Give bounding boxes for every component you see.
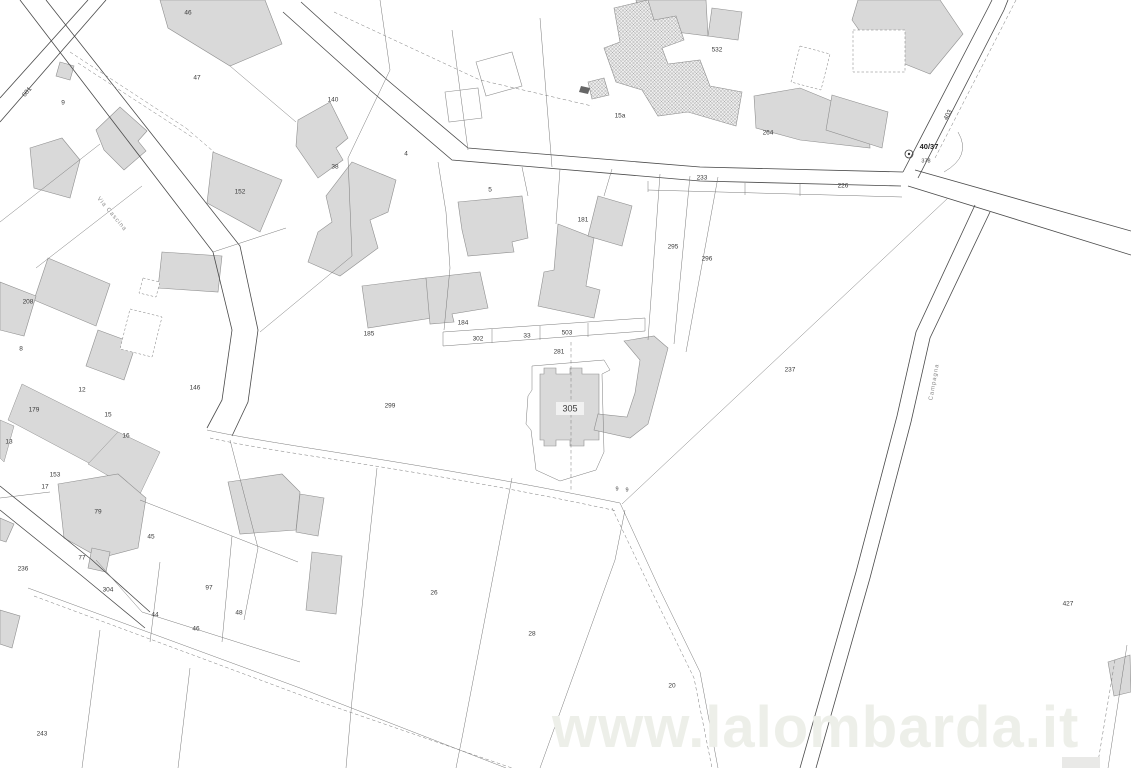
parcel-label: 8 <box>19 346 23 353</box>
parcel-label: 26 <box>430 590 438 597</box>
building-shape <box>158 252 222 292</box>
selected-parcel-label: 305 <box>562 403 577 413</box>
parcel-label: 77 <box>78 555 86 562</box>
parcel-label: 9 <box>615 486 618 492</box>
parcel-label: 17 <box>41 484 49 491</box>
parcel-label: 5 <box>488 187 492 194</box>
parcel-label: 44 <box>151 612 159 619</box>
parcel-label: 152 <box>235 189 246 196</box>
building-shape <box>228 474 300 534</box>
parcel-label: 15 <box>104 412 112 419</box>
parcel-label: 146 <box>190 385 201 392</box>
parcel-label: 79 <box>94 509 102 516</box>
parcel-label: 532 <box>712 47 723 54</box>
parcel-label: 295 <box>668 244 679 251</box>
parcel-label: 47 <box>193 75 201 82</box>
junction-label: 40/37 <box>920 142 939 151</box>
parcel-label: 226 <box>838 183 849 190</box>
parcel-label: 16 <box>122 433 130 440</box>
parcel-label: 179 <box>29 407 40 414</box>
parcel-label: 302 <box>473 336 484 343</box>
parcel-label: 48 <box>235 610 243 617</box>
parcel-label: 503 <box>562 330 573 337</box>
parcel-label: 208 <box>23 299 34 306</box>
cadastral-map-viewer: 40/373784647601914038415253215a264208812… <box>0 0 1131 768</box>
parcel-label: 38 <box>331 164 339 171</box>
parcel-label: 9 <box>625 487 628 493</box>
building-shape <box>708 8 742 40</box>
parcel-label: 4 <box>404 151 408 158</box>
parcel-label: 299 <box>385 403 396 410</box>
parcel-label: 233 <box>697 175 708 182</box>
parcel-label: 185 <box>364 331 375 338</box>
dashed-annex-shape <box>853 30 905 72</box>
parcel-label: 97 <box>205 585 213 592</box>
junction-dot-icon <box>908 153 910 155</box>
parcel-label: 9 <box>61 100 65 107</box>
parcel-label: 181 <box>578 217 589 224</box>
parcel-label: 140 <box>328 97 339 104</box>
parcel-label: 20 <box>668 683 676 690</box>
parcel-label: 12 <box>78 387 86 394</box>
parcel-label: 45 <box>147 534 155 541</box>
parcel-label: 427 <box>1063 601 1074 608</box>
parcel-label: 264 <box>763 130 774 137</box>
parcel-label: 304 <box>103 587 114 594</box>
building-shape <box>88 548 110 572</box>
parcel-label: 13 <box>5 439 13 446</box>
parcel-label: 46 <box>192 626 200 633</box>
parcel-label: 281 <box>554 349 565 356</box>
parcel-label: 28 <box>528 631 536 638</box>
parcel-label: 33 <box>523 333 531 340</box>
parcel-label: 296 <box>702 256 713 263</box>
parcel-label: 243 <box>37 731 48 738</box>
junction-sub-label: 378 <box>921 158 930 164</box>
building-shape <box>306 552 342 614</box>
parcel-label: 15a <box>615 113 626 120</box>
parcel-label: 46 <box>184 10 192 17</box>
light-rect <box>1062 757 1100 768</box>
parcel-label: 237 <box>785 367 796 374</box>
parcel-label: 184 <box>458 320 469 327</box>
parcel-label: 236 <box>18 566 29 573</box>
cadastral-map[interactable]: 40/373784647601914038415253215a264208812… <box>0 0 1131 768</box>
parcel-label: 153 <box>50 472 61 479</box>
